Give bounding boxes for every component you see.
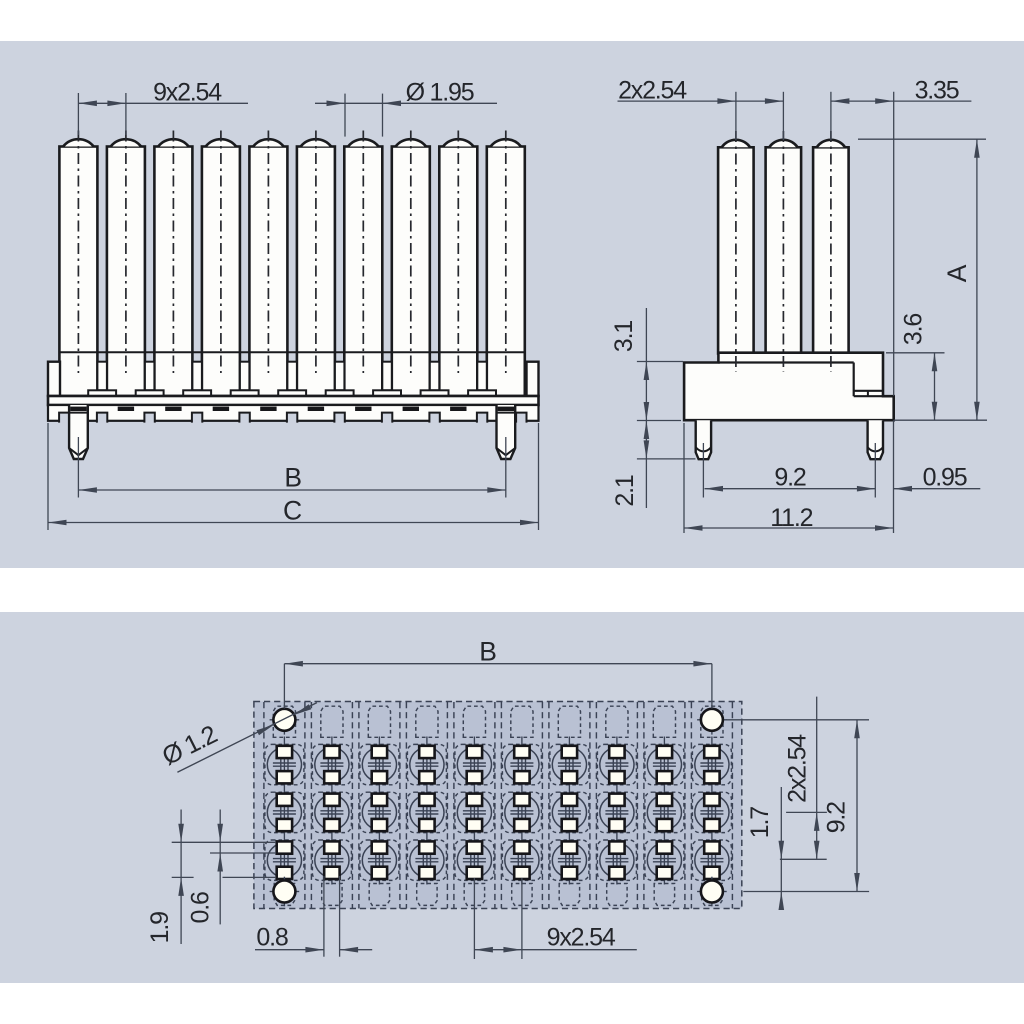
svg-text:3.35: 3.35	[915, 76, 959, 104]
svg-text:9x2.54: 9x2.54	[153, 78, 222, 106]
svg-text:11.2: 11.2	[770, 504, 812, 532]
svg-text:3.1: 3.1	[610, 321, 638, 352]
svg-text:B: B	[479, 637, 496, 667]
svg-text:2.1: 2.1	[611, 475, 639, 506]
svg-text:0.8: 0.8	[256, 924, 287, 952]
svg-text:2x2.54: 2x2.54	[783, 734, 811, 803]
svg-text:3.6: 3.6	[900, 314, 928, 345]
svg-text:2x2.54: 2x2.54	[618, 76, 687, 104]
svg-text:9.2: 9.2	[822, 802, 850, 833]
svg-text:C: C	[283, 495, 302, 525]
svg-text:0.95: 0.95	[923, 464, 967, 492]
svg-text:1.7: 1.7	[746, 807, 774, 838]
svg-text:9x2.54: 9x2.54	[547, 924, 616, 952]
svg-text:9.2: 9.2	[774, 464, 805, 492]
svg-text:Ø 1.95: Ø 1.95	[406, 78, 474, 106]
svg-text:0.6: 0.6	[187, 892, 215, 923]
svg-text:A: A	[942, 264, 972, 282]
svg-text:B: B	[284, 463, 301, 493]
svg-text:1.9: 1.9	[146, 912, 174, 943]
